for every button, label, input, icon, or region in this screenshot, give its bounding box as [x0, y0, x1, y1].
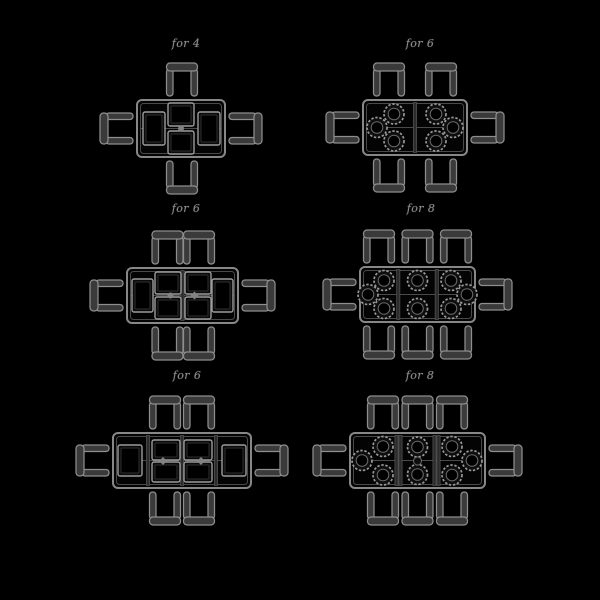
chair-top	[437, 396, 468, 429]
chair-part	[229, 138, 256, 145]
chair-bottom	[374, 159, 405, 192]
placemat-inner	[155, 465, 177, 479]
chair-part	[496, 112, 504, 143]
chair-part	[398, 69, 405, 96]
chair-part	[82, 445, 109, 452]
chair-bottom	[150, 492, 181, 525]
panel-caption-table-for-8-extended: for 8	[406, 369, 434, 382]
chair-part	[174, 402, 181, 429]
chair-top	[441, 230, 472, 263]
panel-caption-table-for-6-mats: for 6	[172, 202, 200, 215]
table-module-seam	[399, 436, 402, 486]
chair-part	[514, 445, 522, 476]
placemat-inner	[188, 300, 208, 316]
table-module-seam	[395, 436, 398, 486]
table-diagram	[323, 230, 512, 359]
placemat-inner	[121, 448, 139, 473]
chair-part	[402, 326, 409, 353]
chair-part	[184, 517, 215, 525]
chair-bottom	[167, 161, 198, 194]
chair-part	[465, 236, 472, 263]
table-diagram	[100, 63, 262, 194]
chair-bottom	[184, 327, 215, 360]
chair-part	[426, 63, 457, 71]
chair-part	[465, 326, 472, 353]
chair-part	[364, 230, 395, 238]
chair-top	[426, 63, 457, 96]
chair-right	[229, 113, 262, 144]
placemat-inner	[171, 134, 191, 151]
chair-part	[437, 402, 444, 429]
plate-center	[377, 441, 389, 453]
chair-part	[329, 279, 356, 286]
chair-part	[191, 161, 198, 188]
chair-part	[255, 445, 282, 452]
placemat-inner	[188, 275, 208, 291]
chair-bottom	[152, 327, 183, 360]
chair-part	[402, 236, 409, 263]
chair-right	[242, 280, 275, 311]
placemat-inner	[158, 275, 178, 291]
chair-part	[150, 492, 157, 519]
placemat-inner	[215, 282, 230, 309]
chair-bottom	[402, 492, 433, 525]
chair-part	[388, 236, 395, 263]
chair-left	[90, 280, 123, 311]
plate-center	[445, 303, 457, 315]
plate-center	[466, 455, 478, 467]
chair-part	[364, 351, 395, 359]
chair-part	[96, 280, 123, 287]
plate-center	[430, 108, 442, 120]
plate-center	[377, 469, 389, 481]
chair-part	[184, 396, 215, 404]
placemat-inner	[135, 282, 150, 309]
chair-part	[167, 186, 198, 194]
chair-left	[100, 113, 133, 144]
chair-part	[150, 402, 157, 429]
table-module-seam	[146, 436, 149, 486]
chair-part	[184, 352, 215, 360]
placemat-inner	[158, 300, 178, 316]
chair-part	[329, 304, 356, 311]
plate-center	[378, 275, 390, 287]
chair-part	[96, 305, 123, 312]
chair-part	[368, 492, 375, 519]
panel-caption-table-for-6-extended: for 6	[173, 369, 201, 382]
chair-left	[323, 279, 356, 310]
chair-bottom	[426, 159, 457, 192]
chair-part	[479, 279, 506, 286]
chair-part	[450, 69, 457, 96]
chair-part	[323, 279, 331, 310]
chair-part	[374, 159, 381, 186]
plate-center	[447, 122, 459, 134]
chair-part	[471, 112, 498, 119]
chair-part	[402, 396, 433, 404]
table-module-seam	[433, 436, 436, 486]
chair-top	[374, 63, 405, 96]
centerpiece	[168, 293, 174, 299]
diagram-canvas	[0, 0, 600, 600]
chair-part	[437, 396, 468, 404]
chair-part	[392, 492, 399, 519]
chair-part	[426, 159, 433, 186]
chair-part	[489, 470, 516, 477]
chair-part	[441, 236, 448, 263]
chair-part	[90, 280, 98, 311]
table-module-seam	[413, 103, 416, 153]
placemat-inner	[225, 448, 243, 473]
chair-bottom	[364, 326, 395, 359]
plate-center	[378, 303, 390, 315]
table-diagram	[76, 396, 288, 525]
chair-part	[504, 279, 512, 310]
panel-caption-table-for-8-plates: for 8	[407, 202, 435, 215]
chair-right	[489, 445, 522, 476]
chair-part	[437, 492, 444, 519]
table-module-seam	[435, 270, 438, 320]
table-module-seam	[214, 436, 217, 486]
chair-part	[242, 280, 269, 287]
plate-center	[445, 275, 457, 287]
placemat-inner	[201, 115, 217, 142]
chair-top	[152, 231, 183, 264]
chair-part	[364, 326, 371, 353]
chair-part	[402, 351, 433, 359]
chair-part	[152, 231, 183, 239]
table-diagram	[90, 231, 275, 360]
chair-part	[184, 402, 191, 429]
chair-part	[461, 492, 468, 519]
panel-caption-table-for-4: for 4	[172, 37, 200, 50]
chair-part	[254, 113, 262, 144]
chair-part	[152, 327, 159, 354]
plate-center	[446, 441, 458, 453]
plate-center	[461, 289, 473, 301]
chair-part	[208, 492, 215, 519]
chair-part	[479, 304, 506, 311]
chair-part	[100, 113, 108, 144]
chair-part	[76, 445, 84, 476]
plate-center	[430, 135, 442, 147]
chair-part	[441, 351, 472, 359]
centerpiece	[178, 126, 184, 132]
chair-part	[177, 237, 184, 264]
table-module-seam	[437, 436, 440, 486]
chair-part	[174, 492, 181, 519]
chair-part	[368, 517, 399, 525]
chair-part	[427, 326, 434, 353]
chair-part	[319, 470, 346, 477]
chair-part	[106, 113, 133, 120]
chair-top	[402, 396, 433, 429]
diagram-sheet: for 4 for 6 for 6 for 8 for 6 for 8	[0, 0, 600, 600]
chair-part	[374, 63, 405, 71]
chair-part	[167, 161, 174, 188]
chair-part	[427, 492, 434, 519]
chair-part	[450, 159, 457, 186]
chair-part	[441, 230, 472, 238]
chair-part	[208, 327, 215, 354]
chair-bottom	[368, 492, 399, 525]
chair-right	[255, 445, 288, 476]
chair-bottom	[402, 326, 433, 359]
chair-top	[402, 230, 433, 263]
chair-part	[280, 445, 288, 476]
chair-part	[426, 69, 433, 96]
chair-left	[313, 445, 346, 476]
chair-top	[184, 396, 215, 429]
chair-part	[184, 492, 191, 519]
placemat-inner	[146, 115, 162, 142]
plate-center	[356, 455, 368, 467]
chair-part	[402, 230, 433, 238]
plate-center	[388, 108, 400, 120]
chair-part	[167, 69, 174, 96]
chair-part	[368, 402, 375, 429]
chair-part	[184, 327, 191, 354]
chair-part	[427, 402, 434, 429]
table-diagram	[313, 396, 522, 525]
table-module-seam	[180, 436, 183, 486]
chair-part	[426, 184, 457, 192]
chair-part	[167, 63, 198, 71]
chair-part	[150, 517, 181, 525]
chair-part	[150, 396, 181, 404]
chair-bottom	[184, 492, 215, 525]
chair-part	[332, 112, 359, 119]
chair-part	[152, 352, 183, 360]
plate-center	[412, 275, 424, 287]
chair-part	[255, 470, 282, 477]
chair-right	[479, 279, 512, 310]
chair-part	[177, 327, 184, 354]
chair-part	[374, 184, 405, 192]
chair-top	[364, 230, 395, 263]
plate-center	[412, 469, 424, 481]
chair-part	[242, 305, 269, 312]
chair-part	[388, 326, 395, 353]
chair-part	[106, 138, 133, 145]
table-module-seam	[397, 270, 400, 320]
chair-part	[437, 517, 468, 525]
plate-center	[412, 303, 424, 315]
chair-left	[76, 445, 109, 476]
plate-center	[362, 289, 374, 301]
placemat-inner	[171, 106, 191, 123]
small-dish	[414, 457, 422, 465]
chair-part	[208, 402, 215, 429]
chair-part	[191, 69, 198, 96]
chair-top	[184, 231, 215, 264]
chair-part	[364, 236, 371, 263]
plate-center	[371, 122, 383, 134]
chair-part	[319, 445, 346, 452]
chair-part	[402, 492, 409, 519]
placemat-inner	[187, 465, 209, 479]
placemat-inner	[155, 443, 177, 457]
chair-part	[313, 445, 321, 476]
chair-part	[368, 396, 399, 404]
chair-part	[402, 517, 433, 525]
chair-part	[402, 402, 409, 429]
chair-part	[427, 236, 434, 263]
chair-part	[229, 113, 256, 120]
chair-part	[184, 231, 215, 239]
plate-center	[446, 469, 458, 481]
chair-top	[167, 63, 198, 96]
chair-part	[461, 402, 468, 429]
plate-center	[412, 441, 424, 453]
chair-part	[184, 237, 191, 264]
plate-center	[388, 135, 400, 147]
chair-part	[326, 112, 334, 143]
chair-part	[208, 237, 215, 264]
chair-part	[332, 137, 359, 144]
chair-part	[441, 326, 448, 353]
chair-bottom	[441, 326, 472, 359]
table-diagram	[326, 63, 504, 192]
chair-top	[150, 396, 181, 429]
chair-left	[326, 112, 359, 143]
chair-part	[82, 470, 109, 477]
placemat-inner	[187, 443, 209, 457]
chair-part	[267, 280, 275, 311]
chair-part	[489, 445, 516, 452]
chair-bottom	[437, 492, 468, 525]
chair-part	[152, 237, 159, 264]
chair-part	[471, 137, 498, 144]
chair-part	[392, 402, 399, 429]
chair-part	[398, 159, 405, 186]
chair-top	[368, 396, 399, 429]
panel-caption-table-for-6-plates: for 6	[406, 37, 434, 50]
chair-part	[374, 69, 381, 96]
chair-right	[471, 112, 504, 143]
